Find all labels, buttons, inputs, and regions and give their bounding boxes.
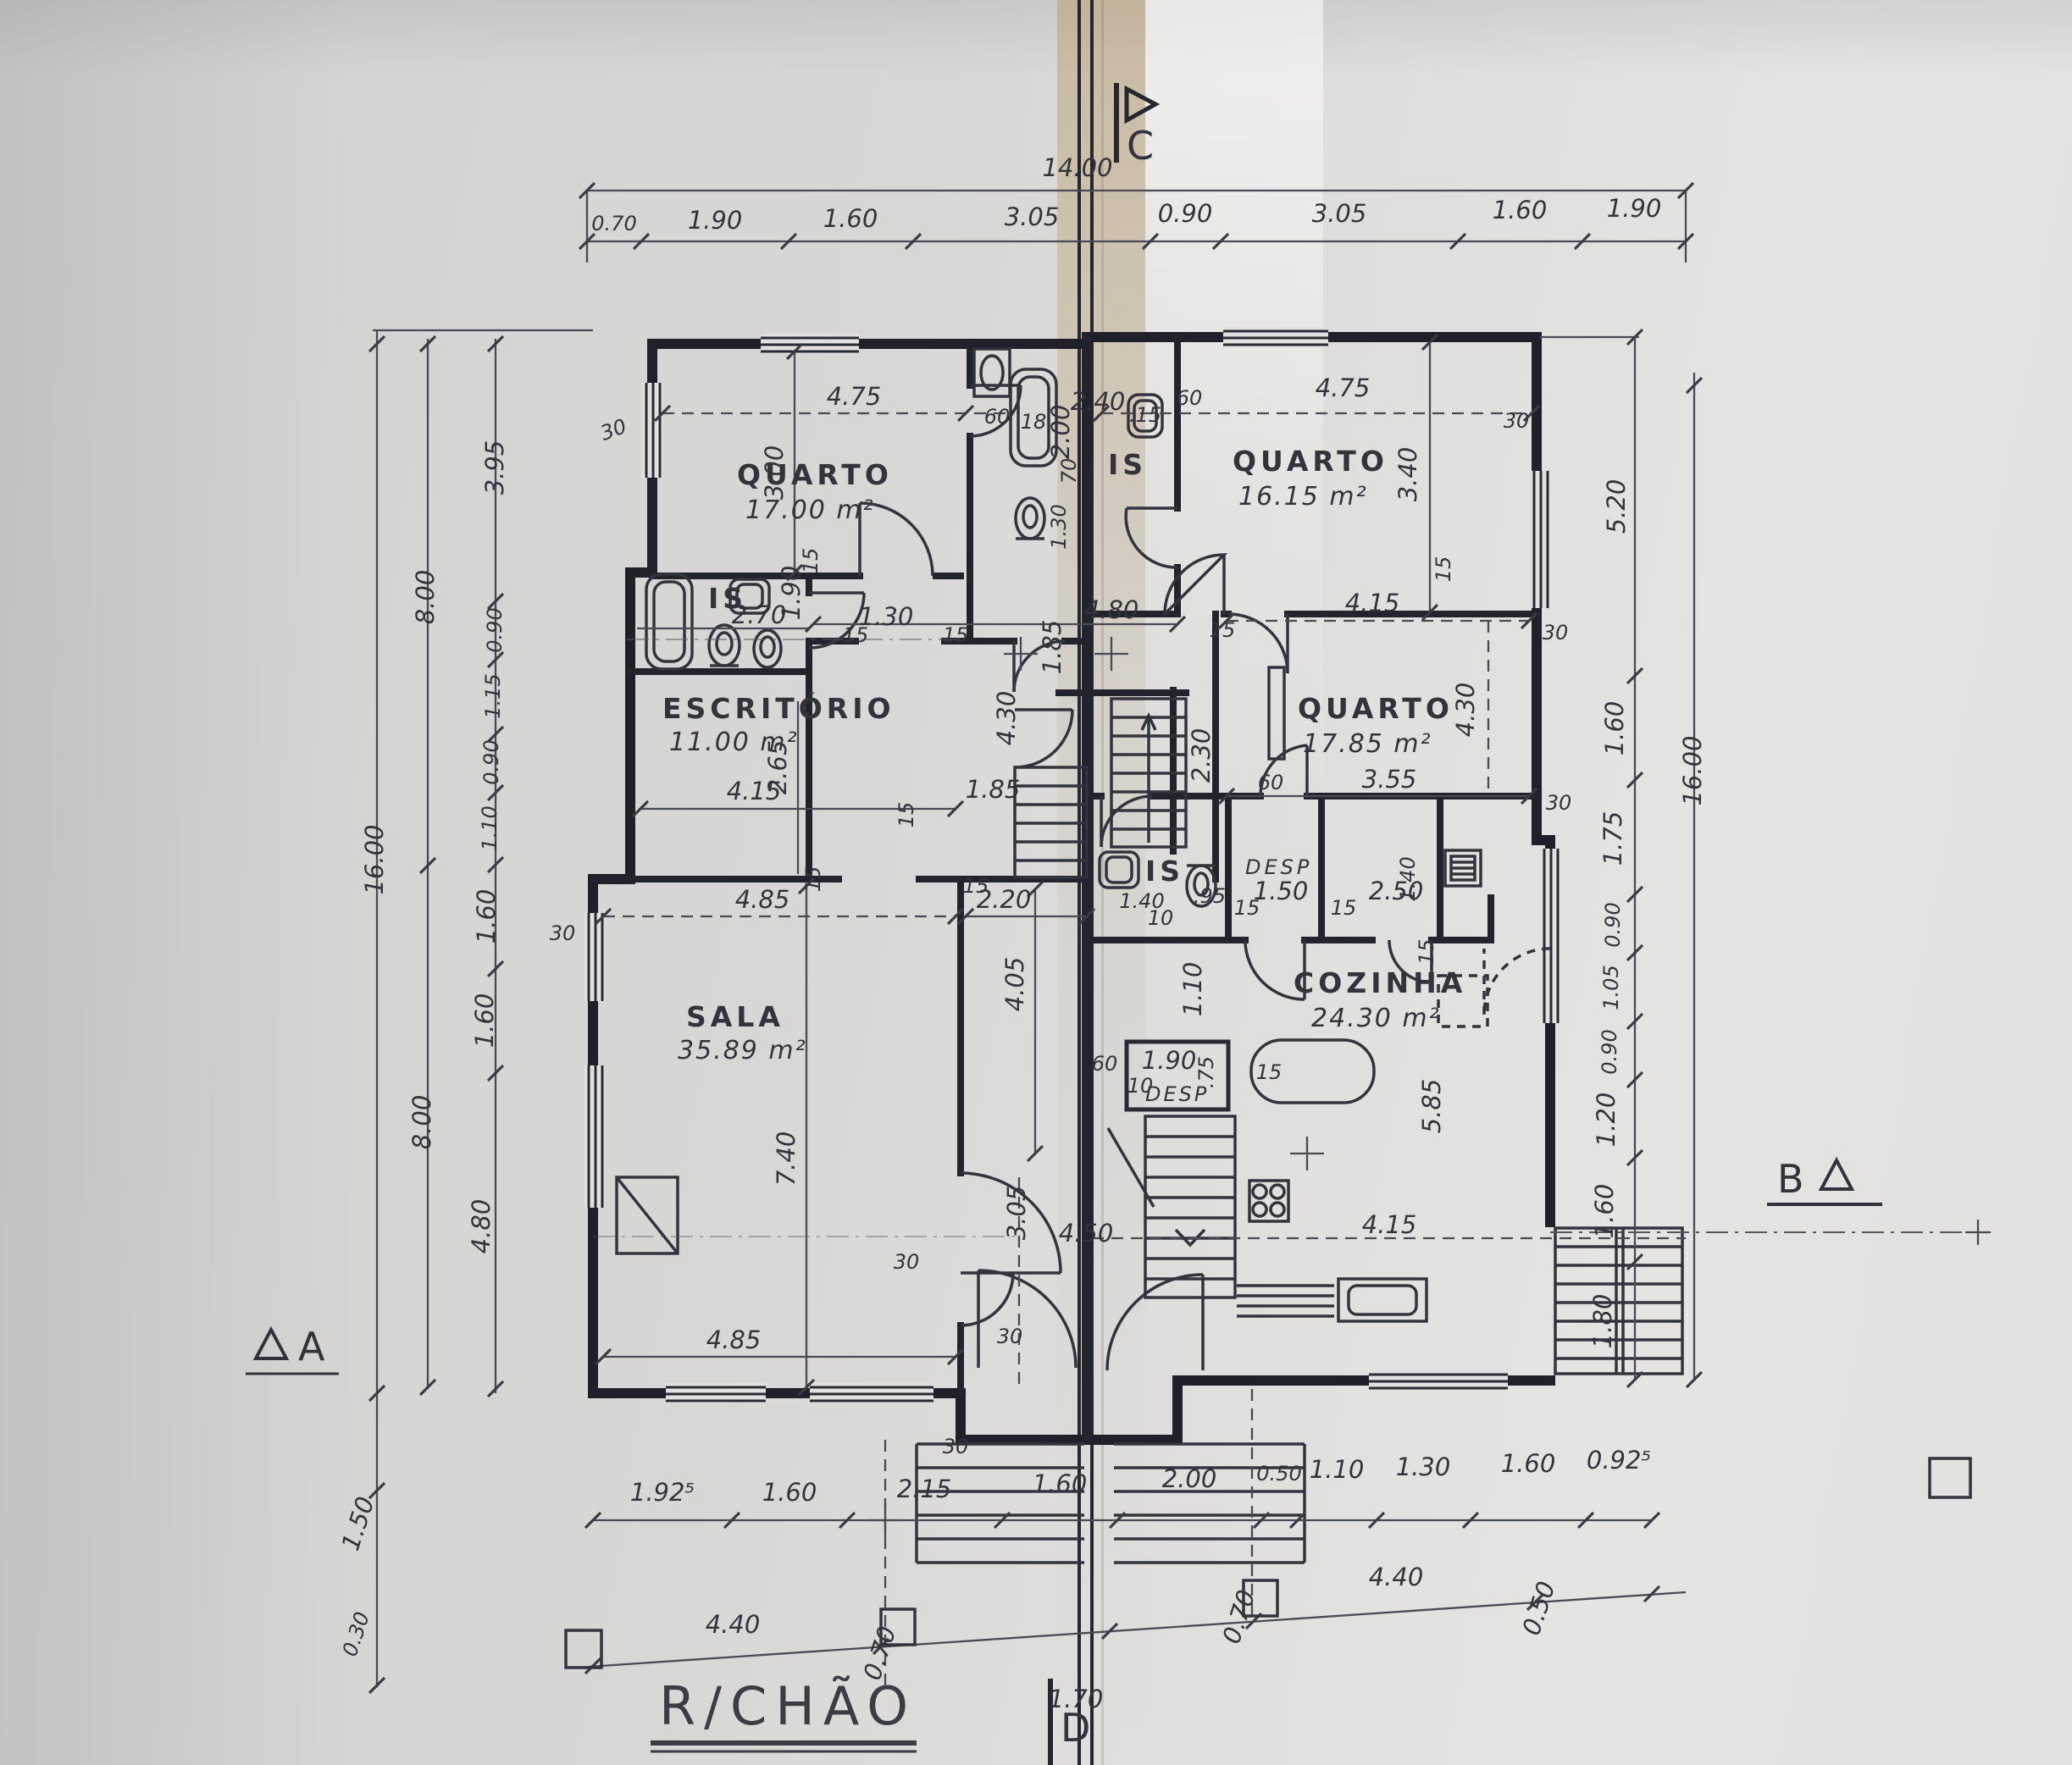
stair-lower (1108, 1116, 1235, 1297)
svg-text:1.10: 1.10 (478, 805, 501, 850)
svg-text:4.75: 4.75 (827, 382, 882, 411)
room-quarto3-area: 17.85 m² (1303, 729, 1432, 759)
svg-text:16.00: 16.00 (1678, 735, 1707, 805)
dim-overall: 14.00 (1042, 153, 1112, 182)
window (666, 1383, 766, 1403)
svg-text:1.60: 1.60 (1501, 1449, 1556, 1478)
toilet (1016, 498, 1044, 539)
svg-text:1.90: 1.90 (688, 206, 743, 235)
svg-text:15: 15 (1432, 556, 1455, 583)
svg-text:5.85: 5.85 (1417, 1079, 1446, 1134)
room-is3: IS (1145, 855, 1184, 888)
window (584, 913, 605, 1001)
wardrobe (1269, 667, 1284, 759)
svg-text:5.20: 5.20 (1602, 479, 1631, 534)
svg-text:1.10: 1.10 (1310, 1455, 1365, 1484)
door-entry (1107, 1275, 1203, 1370)
svg-text:4.80: 4.80 (467, 1199, 496, 1254)
vent-niche (974, 349, 1010, 396)
room-cozinha-area: 24.30 m² (1311, 1004, 1441, 1033)
svg-text:3.05: 3.05 (1005, 202, 1060, 231)
svg-text:16.00: 16.00 (360, 824, 389, 894)
window (810, 1383, 934, 1403)
svg-text:8.00: 8.00 (411, 570, 440, 625)
section-letter-d: D (1061, 1705, 1092, 1751)
svg-text:15: 15 (1256, 1060, 1283, 1084)
svg-text:30: 30 (597, 414, 629, 445)
svg-text:1.40: 1.40 (1396, 856, 1420, 901)
svg-text:1.50: 1.50 (1254, 877, 1309, 905)
svg-text:4.40: 4.40 (1369, 1563, 1424, 1591)
svg-text:15: 15 (1331, 896, 1357, 920)
svg-text:.15: .15 (1129, 403, 1161, 427)
svg-text:1.85: 1.85 (966, 775, 1021, 804)
svg-text:1.90: 1.90 (777, 566, 806, 621)
svg-text:1.92⁵: 1.92⁵ (630, 1478, 695, 1507)
svg-text:1.60: 1.60 (1033, 1469, 1088, 1498)
bathtub (646, 574, 692, 669)
svg-text:2.00: 2.00 (1046, 405, 1075, 460)
door-arc (961, 1273, 1013, 1325)
svg-text:30: 30 (550, 921, 576, 945)
svg-text:0.70: 0.70 (591, 212, 636, 235)
svg-text:30: 30 (894, 1250, 920, 1274)
svg-text:15: 15 (895, 802, 918, 828)
svg-text:1.60: 1.60 (472, 889, 501, 944)
room-desp1: DESP (1245, 855, 1312, 879)
room-is2: IS (1108, 448, 1147, 481)
svg-text:3.55: 3.55 (1362, 765, 1417, 794)
section-marker-c: C (1116, 83, 1155, 169)
counter-drainer (1237, 1286, 1334, 1316)
stair-left-unit (1015, 767, 1087, 877)
svg-text:1.60: 1.60 (1600, 701, 1629, 756)
svg-text:2.15: 2.15 (897, 1475, 952, 1503)
svg-text:3.95: 3.95 (480, 440, 509, 495)
svg-text:4.40: 4.40 (706, 1610, 761, 1639)
svg-text:1.10: 1.10 (1178, 962, 1207, 1017)
svg-text:0.50: 0.50 (1516, 1578, 1560, 1639)
svg-text:0.50: 0.50 (1256, 1462, 1301, 1486)
svg-text:1.60: 1.60 (823, 204, 878, 233)
section-triangle-a (256, 1330, 286, 1358)
svg-text:1.30: 1.30 (1396, 1452, 1451, 1481)
left-dimension-text: 16.00 8.00 8.00 3.95 0.90 1.15 0.90 1.10… (335, 440, 509, 1660)
door-arc (1228, 614, 1288, 673)
entry-steps (917, 1444, 1305, 1563)
section-letter-b: B (1777, 1156, 1806, 1202)
svg-text:2.40: 2.40 (1071, 387, 1126, 416)
svg-text:.95: .95 (1194, 884, 1226, 908)
svg-text:1.30: 1.30 (1047, 504, 1071, 549)
svg-text:0.92⁵: 0.92⁵ (1587, 1446, 1651, 1475)
toilet (709, 625, 740, 666)
svg-text:1.80: 1.80 (1588, 1294, 1617, 1349)
svg-text:60: 60 (1092, 1052, 1118, 1076)
svg-text:1.60: 1.60 (470, 993, 499, 1048)
svg-text:0.90: 0.90 (1158, 199, 1213, 228)
svg-text:2.00: 2.00 (1162, 1464, 1217, 1493)
svg-text:4.50: 4.50 (1059, 1219, 1114, 1248)
svg-text:4.05: 4.05 (1000, 957, 1029, 1012)
room-cozinha: COZINHA (1294, 966, 1466, 999)
svg-text:3.00: 3.00 (760, 445, 789, 501)
svg-text:15: 15 (801, 866, 825, 893)
svg-text:1.60: 1.60 (762, 1478, 817, 1507)
svg-text:15: 15 (843, 623, 869, 647)
window (1369, 1370, 1508, 1391)
door-entry (978, 1270, 1076, 1368)
section-triangle-b (1821, 1160, 1852, 1189)
svg-text:4.15: 4.15 (1362, 1210, 1417, 1239)
svg-text:30: 30 (1546, 791, 1572, 815)
svg-text:0.90: 0.90 (479, 739, 503, 784)
svg-text:1.85: 1.85 (1038, 620, 1066, 675)
section-letter-c: C (1127, 123, 1155, 169)
svg-text:60: 60 (1177, 386, 1203, 410)
room-sala: SALA (686, 1000, 784, 1033)
bidet (754, 630, 781, 667)
svg-text:7.40: 7.40 (772, 1131, 801, 1187)
svg-text:0.90: 0.90 (483, 607, 507, 652)
door-arc (1126, 508, 1177, 567)
right-dimension-text: 16.00 5.20 1.60 1.75 0.90 1.05 0.90 1.20… (1588, 479, 1707, 1349)
svg-text:2.30: 2.30 (1187, 728, 1216, 783)
svg-text:1.20: 1.20 (1592, 1093, 1620, 1148)
window (761, 334, 859, 354)
svg-text:4.85: 4.85 (735, 885, 790, 914)
stove (1249, 1181, 1288, 1221)
svg-text:8.00: 8.00 (407, 1095, 436, 1150)
svg-text:4.75: 4.75 (1316, 373, 1371, 402)
svg-text:1.90: 1.90 (1607, 194, 1662, 223)
svg-text:1.75: 1.75 (1598, 811, 1627, 866)
scanned-floor-plan: QUARTO 17.00 m² QUARTO 16.15 m² QUARTO 1… (0, 0, 2072, 1765)
floor-plan-drawing: QUARTO 17.00 m² QUARTO 16.15 m² QUARTO 1… (0, 0, 2072, 1765)
svg-text:2.65: 2.65 (763, 740, 792, 795)
kitchen-sink (1338, 1279, 1427, 1321)
window (642, 383, 662, 478)
svg-text:.75: .75 (1194, 1056, 1218, 1088)
water-heater (1445, 850, 1481, 886)
svg-text:30: 30 (1543, 621, 1569, 645)
section-marker-b: B (1767, 1156, 1882, 1204)
svg-text:30: 30 (1504, 409, 1530, 433)
room-quarto2: QUARTO (1233, 445, 1388, 478)
svg-text:10: 10 (1148, 906, 1174, 930)
svg-text:1.15: 1.15 (481, 673, 505, 718)
svg-text:0.90: 0.90 (1598, 1029, 1621, 1074)
door-arc (1165, 555, 1224, 614)
svg-text:30: 30 (943, 1435, 969, 1458)
svg-text:4.30: 4.30 (1451, 683, 1480, 738)
section-marker-a: A (246, 1324, 339, 1374)
svg-text:4.85: 4.85 (706, 1325, 762, 1354)
svg-text:15: 15 (1415, 939, 1438, 965)
svg-text:60: 60 (984, 405, 1011, 429)
svg-text:30: 30 (997, 1325, 1023, 1348)
title-text: R/CHÃO (659, 1675, 917, 1737)
bottom-dimension-text: 1.92⁵ 1.60 2.15 1.60 2.00 0.50 1.10 1.30… (630, 1446, 1651, 1507)
svg-text:4.15: 4.15 (1345, 589, 1400, 617)
drawing-title: R/CHÃO (651, 1675, 917, 1751)
svg-text:1.50: 1.50 (335, 1493, 379, 1554)
window (584, 1065, 605, 1208)
svg-text:0.30: 0.30 (338, 1609, 374, 1659)
svg-text:1.90: 1.90 (1142, 1046, 1197, 1075)
section-letter-a: A (298, 1324, 326, 1369)
fireplace (617, 1177, 678, 1253)
section-triangle-c (1127, 89, 1155, 120)
door-arc (1101, 796, 1152, 847)
svg-text:3.40: 3.40 (1393, 447, 1422, 502)
svg-text:15: 15 (943, 623, 969, 647)
svg-text:10: 10 (1127, 1074, 1154, 1098)
sink (1100, 852, 1138, 888)
stair-exterior (1555, 1228, 1682, 1374)
svg-text:15: 15 (1210, 618, 1236, 642)
svg-text:1.60: 1.60 (1590, 1184, 1619, 1239)
svg-text:18: 18 (1021, 410, 1047, 434)
svg-text:70: 70 (1057, 458, 1081, 484)
svg-text:3.05: 3.05 (1002, 1186, 1031, 1241)
svg-text:0.90: 0.90 (1601, 902, 1625, 947)
svg-text:4.80: 4.80 (1084, 595, 1139, 624)
room-quarto3: QUARTO (1298, 692, 1454, 725)
door-arc (1015, 710, 1072, 767)
window (1530, 471, 1550, 608)
svg-text:1.05: 1.05 (1599, 965, 1623, 1010)
room-sala-area: 35.89 m² (678, 1036, 807, 1065)
svg-text:15: 15 (963, 874, 989, 898)
room-quarto2-area: 16.15 m² (1238, 482, 1368, 512)
window (1540, 849, 1560, 1023)
window (1223, 327, 1328, 347)
room-escritorio: ESCRITÓRIO (662, 691, 895, 725)
svg-text:3.05: 3.05 (1312, 199, 1367, 228)
svg-text:4.30: 4.30 (992, 691, 1021, 746)
svg-text:1.60: 1.60 (1493, 196, 1548, 224)
svg-text:60: 60 (1258, 771, 1284, 794)
